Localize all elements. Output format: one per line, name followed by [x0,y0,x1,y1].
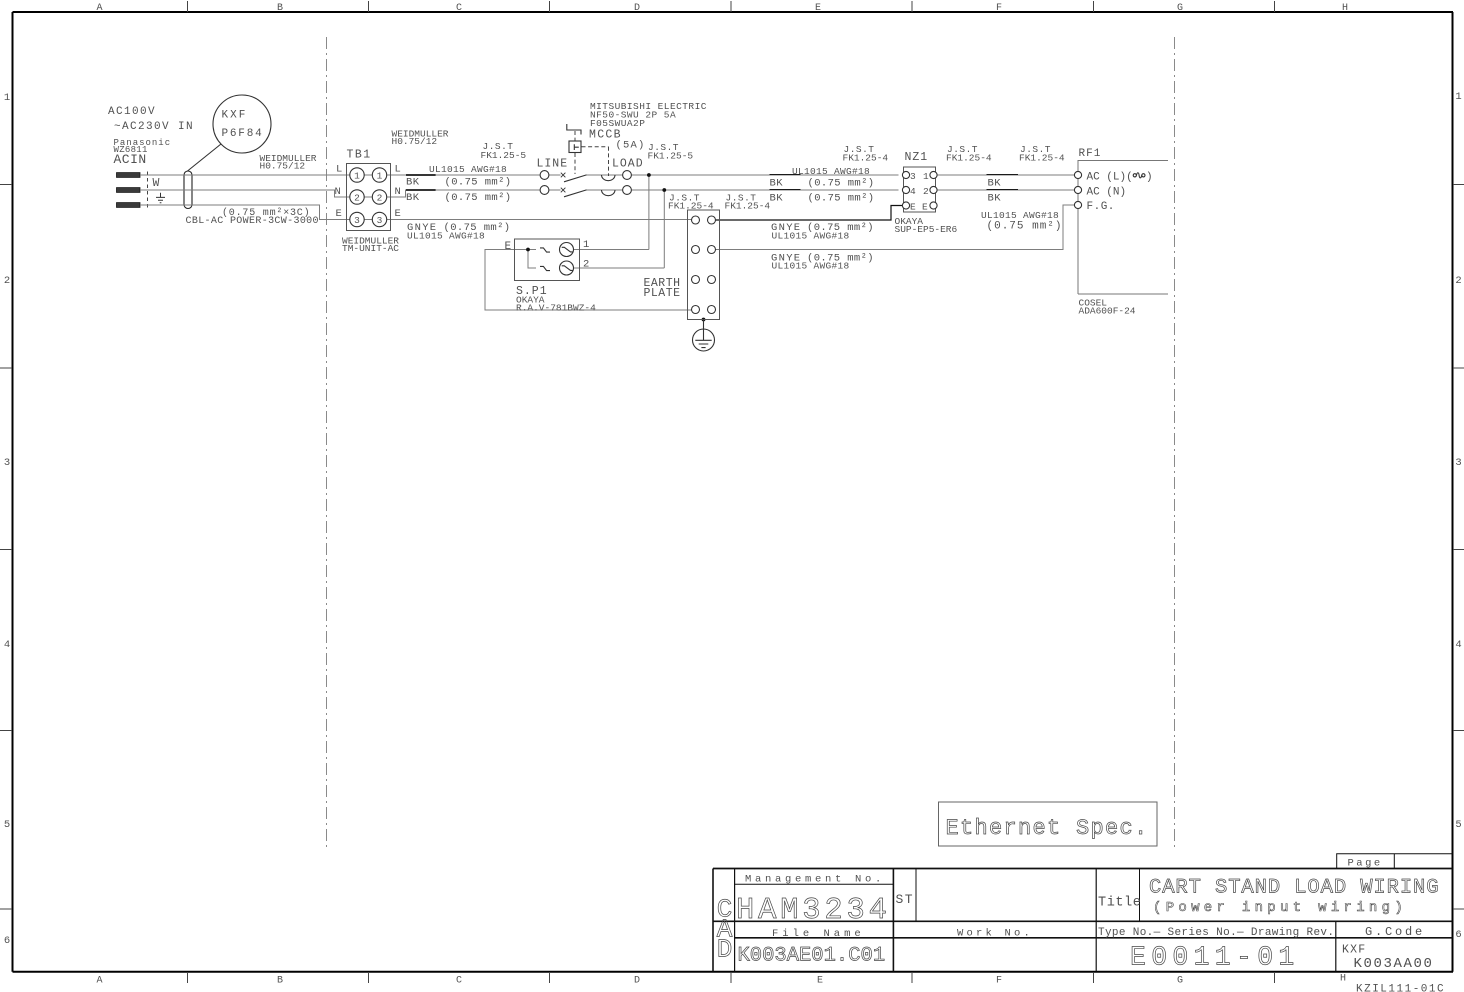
svg-text:ST: ST [896,892,915,907]
svg-text:B: B [277,976,283,987]
svg-text:1: 1 [354,170,360,181]
svg-text:K003AA00: K003AA00 [1354,956,1434,972]
svg-text:FK1.25-4: FK1.25-4 [946,153,992,164]
svg-text:2: 2 [923,186,929,197]
svg-text:1: 1 [377,170,383,181]
svg-text:CART STAND LOAD WIRING: CART STAND LOAD WIRING [1149,877,1439,900]
svg-text:UL1015 AWG#18: UL1015 AWG#18 [429,164,507,175]
svg-text:E: E [815,3,821,14]
svg-text:FK1.25-4: FK1.25-4 [725,201,771,212]
svg-text:F: F [996,3,1002,14]
svg-text:W: W [153,177,160,190]
svg-text:D: D [717,935,733,965]
svg-text:H0.75/12: H0.75/12 [392,136,438,147]
svg-text:TM-UNIT-AC: TM-UNIT-AC [342,243,399,254]
svg-text:R.A.V-781BWZ-4: R.A.V-781BWZ-4 [516,303,596,314]
svg-text:N: N [335,186,342,198]
svg-text:G: G [1177,976,1183,987]
svg-text:3: 3 [910,171,916,182]
svg-text:AC100V: AC100V [108,106,156,118]
svg-text:B: B [277,3,283,14]
svg-text:E0011-01: E0011-01 [1130,943,1300,973]
svg-text:(0.75 mm²): (0.75 mm²) [808,193,875,205]
svg-text:3: 3 [1455,457,1461,469]
svg-text:FK1.25-5: FK1.25-5 [648,151,694,162]
svg-text:E: E [922,202,928,213]
svg-text:BK: BK [770,178,784,190]
svg-text:E: E [910,202,916,213]
svg-text:4: 4 [4,639,10,651]
svg-text:N: N [395,186,402,198]
svg-text:F: F [996,976,1002,987]
svg-text:LOAD: LOAD [612,158,644,171]
svg-text:FK1.25-4: FK1.25-4 [843,153,889,164]
svg-text:(Power input wiring): (Power input wiring) [1153,900,1407,916]
svg-text:2: 2 [354,192,360,203]
svg-text:2: 2 [1455,275,1461,287]
svg-text:F.G.: F.G. [1087,201,1115,213]
svg-text:G: G [1177,3,1183,14]
svg-text:1: 1 [1455,91,1461,103]
svg-text:E: E [336,208,343,220]
svg-text:HAM3234: HAM3234 [736,894,891,928]
svg-text:5: 5 [1455,819,1461,831]
svg-text:5: 5 [4,819,10,831]
svg-text:Title: Title [1098,896,1142,911]
svg-text:4: 4 [910,186,916,197]
svg-text:6: 6 [1455,929,1461,941]
svg-text:D: D [634,976,640,987]
svg-text:UL1015 AWG#18: UL1015 AWG#18 [792,166,870,177]
svg-text:BK: BK [988,193,1002,205]
svg-text:E: E [395,208,402,220]
svg-text:RF1: RF1 [1079,148,1102,160]
svg-text:2: 2 [583,259,590,271]
svg-text:ACIN: ACIN [114,152,147,167]
svg-text:BK: BK [406,192,420,204]
svg-text:ADA600F-24: ADA600F-24 [1079,306,1136,317]
svg-text:4: 4 [1455,639,1461,651]
svg-text:H0.75/12: H0.75/12 [260,161,306,172]
svg-text:BK: BK [770,193,784,205]
svg-text:1: 1 [583,239,590,251]
svg-text:1: 1 [4,92,10,104]
svg-text:Work No.: Work No. [957,928,1033,940]
svg-text:C: C [456,976,462,987]
svg-text:3: 3 [4,457,10,469]
svg-text:3: 3 [354,215,360,226]
svg-text:E: E [505,241,512,253]
svg-text:~AC230V IN: ~AC230V IN [114,121,194,133]
svg-text:Type No.— Series No.— Drawing: Type No.— Series No.— Drawing Rev. [1098,927,1334,939]
svg-text:6: 6 [4,935,10,947]
svg-text:A: A [96,976,102,987]
svg-text:UL1015 AWG#18: UL1015 AWG#18 [981,210,1059,221]
svg-text:AC (N): AC (N) [1087,187,1127,199]
svg-text:PLATE: PLATE [644,287,681,300]
svg-text:BK: BK [406,177,420,189]
svg-text:BK: BK [988,178,1002,190]
svg-text:UL1015 AWG#18: UL1015 AWG#18 [407,231,485,242]
svg-text:2: 2 [4,275,10,287]
svg-text:(0.75 mm²): (0.75 mm²) [445,177,512,189]
svg-text:1: 1 [923,171,929,182]
svg-text:NZ1: NZ1 [905,151,929,164]
svg-text:): ) [1146,172,1153,184]
svg-text:File Name: File Name [772,928,865,940]
svg-text:KXF: KXF [222,110,248,122]
svg-text:KXF: KXF [1342,944,1366,957]
svg-text:3: 3 [377,215,383,226]
svg-text:(5A): (5A) [616,140,646,152]
svg-text:(0.75 mm²): (0.75 mm²) [987,221,1063,233]
svg-text:FK1.25-4: FK1.25-4 [1019,153,1065,164]
svg-text:FK1.25-5: FK1.25-5 [481,150,527,161]
svg-text:L: L [395,164,402,176]
svg-text:L: L [336,164,343,176]
svg-text:TB1: TB1 [347,149,372,162]
svg-text:P6F84: P6F84 [222,128,264,140]
svg-text:LINE: LINE [537,158,569,171]
svg-text:E: E [817,976,823,987]
svg-text:Management No.: Management No. [745,874,885,886]
svg-text:UL1015 AWG#18: UL1015 AWG#18 [772,231,850,242]
svg-text:G.Code: G.Code [1365,925,1425,939]
svg-text:AC (L)(: AC (L)( [1087,172,1133,184]
svg-text:H: H [1342,3,1348,14]
svg-text:A: A [96,3,102,14]
svg-text:K003AE01.C01: K003AE01.C01 [738,945,886,968]
svg-text:SUP-EP5-ER6: SUP-EP5-ER6 [895,224,958,235]
svg-text:H: H [1340,974,1346,985]
svg-text:Page: Page [1348,858,1383,870]
svg-text:(0.75 mm²): (0.75 mm²) [808,178,875,190]
svg-text:KZIL111-01C: KZIL111-01C [1356,984,1445,992]
svg-text:CBL-AC POWER-3CW-3000: CBL-AC POWER-3CW-3000 [186,216,319,227]
svg-text:C: C [456,3,462,14]
svg-text:UL1015 AWG#18: UL1015 AWG#18 [772,261,850,272]
svg-text:2: 2 [377,192,383,203]
svg-text:(0.75 mm²): (0.75 mm²) [445,192,512,204]
svg-text:Ethernet Spec.: Ethernet Spec. [946,816,1149,841]
svg-text:D: D [634,3,640,14]
